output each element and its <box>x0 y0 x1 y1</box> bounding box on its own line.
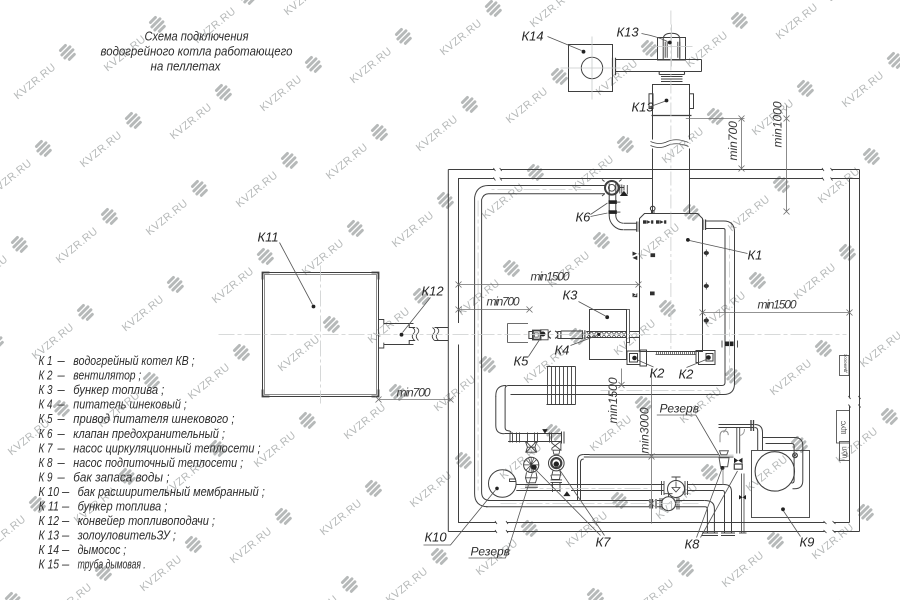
svg-text:К6: К6 <box>576 210 592 225</box>
svg-text:К9: К9 <box>800 535 815 550</box>
svg-text:клапан предохранительный ;: клапан предохранительный ; <box>73 426 225 441</box>
svg-text:–: – <box>61 528 70 543</box>
svg-text:бак запаса воды ;: бак запаса воды ; <box>73 469 170 484</box>
svg-text:–: – <box>57 382 66 397</box>
svg-text:К 10: К 10 <box>39 484 60 499</box>
svg-text:К 7: К 7 <box>39 440 54 455</box>
svg-text:бункер топлива ;: бункер топлива ; <box>78 499 168 514</box>
svg-text:вентилятор ;: вентилятор ; <box>73 368 141 383</box>
svg-text:ЩУП: ЩУП <box>843 446 849 458</box>
svg-text:К14: К14 <box>522 29 544 44</box>
svg-text:К13: К13 <box>617 25 640 40</box>
svg-text:min1500: min1500 <box>606 377 620 423</box>
svg-text:ЩУС: ЩУС <box>842 420 848 434</box>
svg-text:К 4: К 4 <box>39 397 53 412</box>
svg-text:труба дымовая .: труба дымовая . <box>78 557 146 572</box>
svg-text:бункер топлива ;: бункер топлива ; <box>73 382 164 397</box>
svg-text:–: – <box>57 440 66 455</box>
svg-text:min1500: min1500 <box>758 298 797 312</box>
svg-text:К 6: К 6 <box>39 426 54 441</box>
svg-text:привод питателя шнекового ;: привод питателя шнекового ; <box>73 411 235 426</box>
svg-text:Резерв: Резерв <box>660 402 699 416</box>
svg-text:К12: К12 <box>422 284 445 299</box>
svg-text:К7: К7 <box>596 535 612 550</box>
svg-text:дымосос ;: дымосос ; <box>78 542 127 557</box>
svg-text:min1000: min1000 <box>771 101 785 147</box>
svg-text:К 3: К 3 <box>39 382 54 397</box>
svg-text:Резерв: Резерв <box>471 545 510 559</box>
svg-text:бак расширительный мембранный: бак расширительный мембранный ; <box>78 484 266 499</box>
svg-text:–: – <box>57 455 66 470</box>
svg-text:min1500: min1500 <box>531 270 570 284</box>
svg-text:К1: К1 <box>748 248 763 263</box>
svg-text:–: – <box>57 411 66 426</box>
svg-text:–: – <box>57 368 66 383</box>
svg-text:К3: К3 <box>563 288 579 303</box>
svg-text:К 15: К 15 <box>39 557 60 572</box>
svg-text:К 11: К 11 <box>39 499 60 514</box>
svg-text:К13: К13 <box>632 100 655 115</box>
svg-text:золоуловительЗУ ;: золоуловительЗУ ; <box>77 528 177 543</box>
svg-text:–: – <box>61 513 70 528</box>
svg-text:min700: min700 <box>726 121 740 161</box>
svg-text:К 14: К 14 <box>39 542 60 557</box>
svg-text:Схема подключения: Схема подключения <box>145 29 249 44</box>
svg-text:–: – <box>61 484 70 499</box>
svg-text:К11: К11 <box>258 230 279 245</box>
svg-text:К 9: К 9 <box>39 469 53 484</box>
svg-text:К 1: К 1 <box>39 353 53 368</box>
svg-text:К 5: К 5 <box>39 411 54 426</box>
svg-text:водогрейный котел КВ ;: водогрейный котел КВ ; <box>73 353 195 368</box>
svg-text:min700: min700 <box>487 295 520 309</box>
svg-text:min3000: min3000 <box>638 407 652 453</box>
svg-text:К5: К5 <box>514 354 530 369</box>
svg-text:–: – <box>61 542 70 557</box>
svg-text:дымосос: дымосос <box>842 353 847 372</box>
svg-text:К 2: К 2 <box>39 368 54 383</box>
svg-text:на пеллетах: на пеллетах <box>151 59 221 74</box>
svg-text:водогрейного котла работающего: водогрейного котла работающего <box>101 44 293 59</box>
svg-text:К 8: К 8 <box>39 455 54 470</box>
svg-text:–: – <box>57 397 66 412</box>
svg-text:–: – <box>57 426 66 441</box>
svg-text:К2: К2 <box>650 366 666 381</box>
svg-text:К 12: К 12 <box>39 513 60 528</box>
svg-text:насос циркуляционный теплосети: насос циркуляционный теплосети ; <box>73 440 261 455</box>
svg-text:–: – <box>57 353 66 368</box>
svg-text:–: – <box>57 469 66 484</box>
svg-text:–: – <box>61 557 70 572</box>
svg-text:насос подпиточный теплосети ;: насос подпиточный теплосети ; <box>73 455 243 470</box>
svg-text:конвейер топливоподачи ;: конвейер топливоподачи ; <box>78 513 216 528</box>
svg-text:К2: К2 <box>679 367 695 382</box>
svg-text:К8: К8 <box>685 537 701 552</box>
svg-text:min700: min700 <box>397 386 431 400</box>
svg-text:К4: К4 <box>555 343 570 358</box>
svg-text:–: – <box>61 499 70 514</box>
svg-text:питатель шнековый ;: питатель шнековый ; <box>73 397 187 412</box>
svg-text:К 13: К 13 <box>39 528 60 543</box>
svg-text:К10: К10 <box>425 530 448 545</box>
